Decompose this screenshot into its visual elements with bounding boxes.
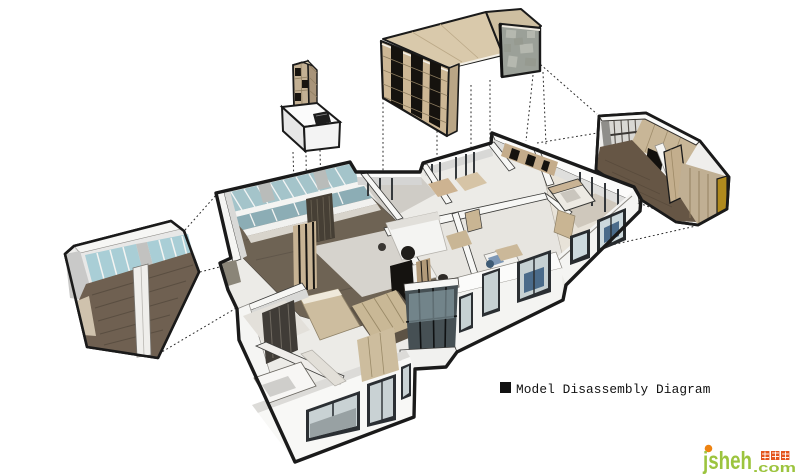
svg-text:jsheh: jsheh (702, 447, 752, 475)
svg-text:Model Disassembly Diagram: Model Disassembly Diagram (516, 382, 711, 397)
svg-text:.com: .com (753, 460, 796, 475)
